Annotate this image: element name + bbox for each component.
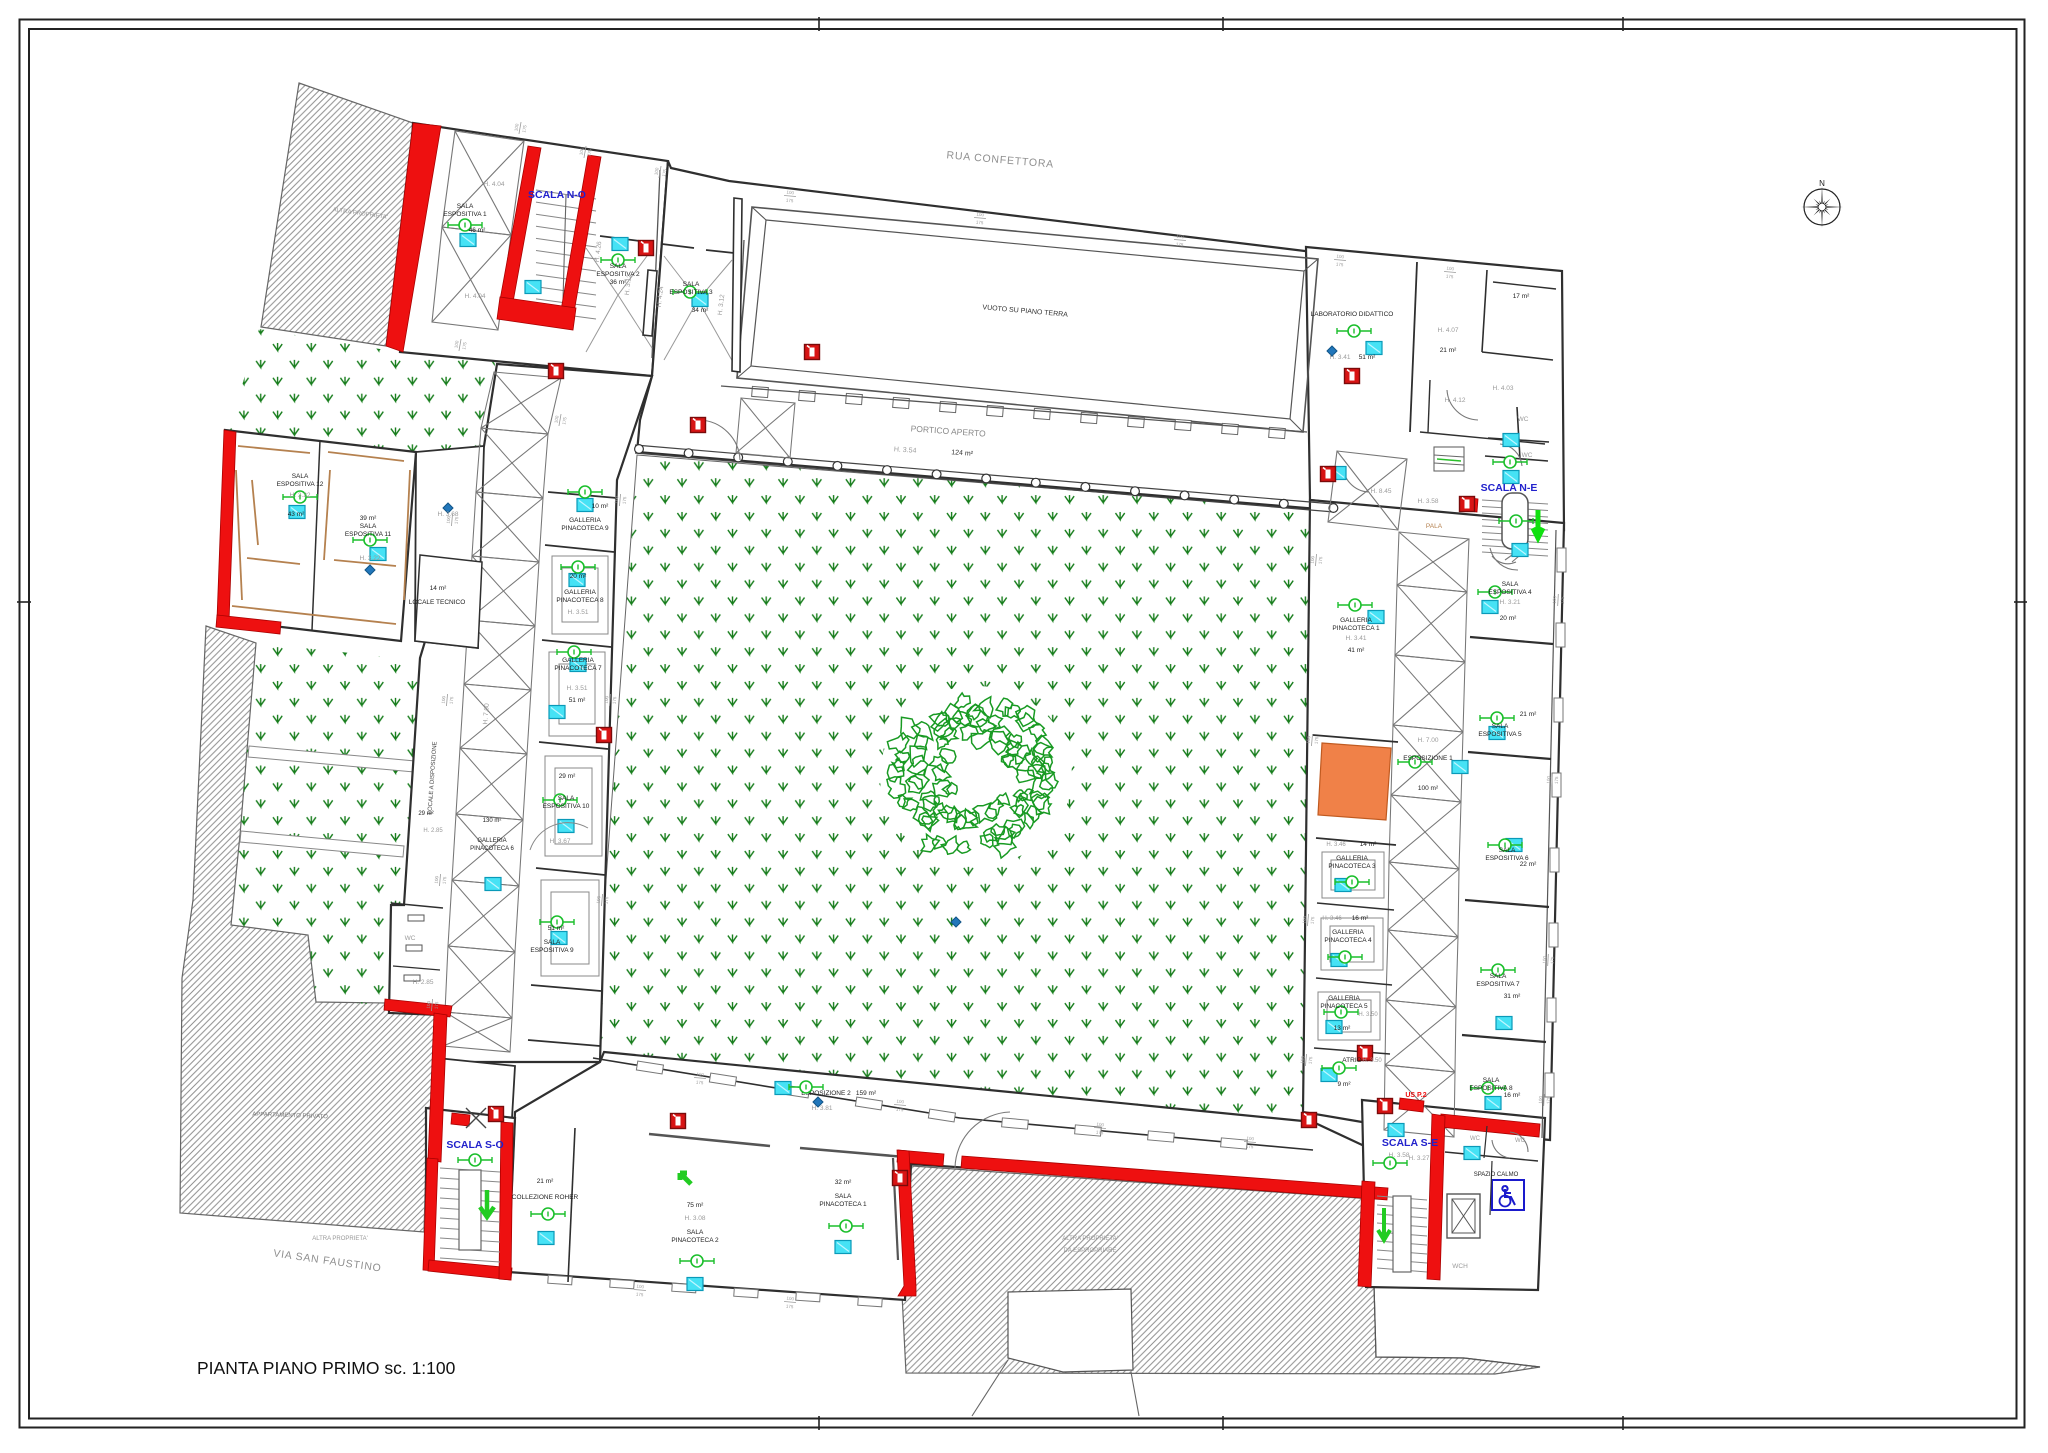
svg-text:H. 3.22: H. 3.22 bbox=[360, 555, 381, 562]
svg-text:H. 3.58: H. 3.58 bbox=[1418, 498, 1439, 505]
svg-text:ESPOSITIVA 3: ESPOSITIVA 3 bbox=[669, 289, 713, 296]
svg-text:175: 175 bbox=[1308, 1056, 1314, 1064]
svg-text:100: 100 bbox=[1246, 1136, 1254, 1142]
svg-text:29 m²: 29 m² bbox=[418, 811, 433, 817]
svg-text:SALA: SALA bbox=[457, 203, 474, 210]
svg-text:46 m²: 46 m² bbox=[469, 227, 486, 234]
svg-text:175: 175 bbox=[976, 220, 984, 226]
svg-text:H. 8.45: H. 8.45 bbox=[1371, 488, 1392, 495]
svg-text:175: 175 bbox=[1446, 274, 1454, 280]
svg-text:100: 100 bbox=[1176, 234, 1184, 240]
svg-text:175: 175 bbox=[434, 1001, 440, 1009]
svg-text:100: 100 bbox=[596, 895, 602, 903]
svg-text:ESPOSITIVA 7: ESPOSITIVA 7 bbox=[1476, 981, 1520, 988]
svg-text:H. 3.50: H. 3.50 bbox=[1358, 1012, 1378, 1018]
svg-text:100 m²: 100 m² bbox=[1418, 785, 1439, 792]
svg-text:SALA: SALA bbox=[1502, 581, 1519, 588]
svg-text:34 m²: 34 m² bbox=[692, 307, 709, 314]
svg-text:GALLERIA: GALLERIA bbox=[1336, 855, 1368, 862]
svg-text:100: 100 bbox=[636, 1284, 644, 1290]
svg-text:ALTRA PROPRIETA': ALTRA PROPRIETA' bbox=[1062, 1236, 1118, 1242]
svg-text:75 m²: 75 m² bbox=[687, 1202, 704, 1209]
svg-text:SALA: SALA bbox=[687, 1229, 704, 1236]
svg-text:PINACOTECA 4: PINACOTECA 4 bbox=[1324, 937, 1372, 944]
svg-text:175: 175 bbox=[1310, 916, 1316, 924]
svg-text:PINACOTECA 2: PINACOTECA 2 bbox=[671, 1237, 719, 1244]
svg-text:175: 175 bbox=[1546, 1096, 1551, 1104]
svg-text:100: 100 bbox=[1310, 555, 1316, 563]
svg-text:H. 2.85: H. 2.85 bbox=[413, 979, 434, 986]
svg-text:31 m²: 31 m² bbox=[1504, 993, 1521, 1000]
svg-text:LABORATORIO DIDATTICO: LABORATORIO DIDATTICO bbox=[1311, 311, 1394, 318]
svg-text:WC: WC bbox=[405, 935, 416, 942]
svg-text:51 m²: 51 m² bbox=[569, 697, 586, 704]
svg-text:H. 3.22: H. 3.22 bbox=[290, 492, 311, 499]
svg-text:H. 4.12: H. 4.12 bbox=[1445, 397, 1466, 404]
svg-text:H. 3.58: H. 3.58 bbox=[1389, 1152, 1410, 1159]
svg-text:GALLERIA: GALLERIA bbox=[1332, 929, 1364, 936]
svg-text:ESPOSITIVA 1: ESPOSITIVA 1 bbox=[443, 211, 487, 218]
svg-text:WC: WC bbox=[1470, 1136, 1481, 1142]
svg-text:H. 3.46: H. 3.46 bbox=[1322, 916, 1342, 922]
svg-text:51 m²: 51 m² bbox=[548, 925, 565, 932]
svg-text:175: 175 bbox=[612, 696, 618, 704]
svg-text:16 m²: 16 m² bbox=[1504, 1092, 1521, 1099]
svg-text:10 m²: 10 m² bbox=[592, 503, 609, 510]
svg-text:PINACOTECA 1: PINACOTECA 1 bbox=[1332, 625, 1380, 632]
svg-text:159 m²: 159 m² bbox=[856, 1090, 877, 1097]
svg-text:SALA: SALA bbox=[1492, 723, 1509, 730]
svg-text:100: 100 bbox=[696, 1072, 704, 1078]
svg-text:PINACOTECA 1: PINACOTECA 1 bbox=[819, 1201, 867, 1208]
svg-text:175: 175 bbox=[696, 1080, 704, 1086]
svg-text:100: 100 bbox=[434, 875, 440, 883]
svg-text:16 m²: 16 m² bbox=[1352, 915, 1369, 922]
svg-text:175: 175 bbox=[442, 876, 448, 884]
svg-text:100: 100 bbox=[1542, 955, 1547, 963]
svg-text:PIANTA PIANO PRIMO sc. 1:100: PIANTA PIANO PRIMO sc. 1:100 bbox=[197, 1358, 456, 1378]
svg-text:ESPOSITIVA 8: ESPOSITIVA 8 bbox=[1469, 1085, 1513, 1092]
svg-text:175: 175 bbox=[786, 1304, 794, 1310]
svg-text:SALA: SALA bbox=[360, 523, 377, 530]
svg-text:100: 100 bbox=[1302, 915, 1308, 923]
svg-text:ATRIO: ATRIO bbox=[1342, 1057, 1361, 1064]
svg-text:SALA: SALA bbox=[835, 1193, 852, 1200]
svg-text:130 m²: 130 m² bbox=[483, 818, 502, 824]
svg-text:WC: WC bbox=[1518, 416, 1529, 423]
svg-text:SALA: SALA bbox=[610, 263, 627, 270]
svg-text:100: 100 bbox=[1306, 735, 1312, 743]
svg-text:SPAZIO CALMO: SPAZIO CALMO bbox=[1474, 1172, 1519, 1178]
svg-text:17 m²: 17 m² bbox=[1513, 293, 1530, 300]
svg-text:SALA: SALA bbox=[683, 281, 700, 288]
svg-text:H. 3.51: H. 3.51 bbox=[568, 609, 589, 616]
svg-text:175: 175 bbox=[1176, 242, 1184, 248]
svg-text:ESPOSIZIONE 1: ESPOSIZIONE 1 bbox=[1403, 755, 1453, 762]
svg-text:175: 175 bbox=[786, 198, 794, 204]
svg-text:H. 3.51: H. 3.51 bbox=[567, 685, 588, 692]
svg-text:H. 3.50: H. 3.50 bbox=[1362, 1058, 1382, 1064]
svg-text:ALTRA PROPRIETA': ALTRA PROPRIETA' bbox=[312, 1236, 368, 1242]
svg-text:SCALA N-O: SCALA N-O bbox=[528, 189, 586, 201]
svg-text:H. 3.41: H. 3.41 bbox=[1330, 354, 1351, 361]
svg-text:GALLERIA: GALLERIA bbox=[562, 657, 594, 664]
svg-text:SALA: SALA bbox=[544, 939, 561, 946]
svg-text:175: 175 bbox=[1314, 736, 1320, 744]
svg-text:H. 4.07: H. 4.07 bbox=[1438, 327, 1459, 334]
svg-text:175: 175 bbox=[1550, 956, 1555, 964]
svg-text:H. 3.41: H. 3.41 bbox=[1346, 635, 1367, 642]
svg-text:H. 4.04: H. 4.04 bbox=[484, 181, 505, 188]
svg-text:GALLERIA: GALLERIA bbox=[1328, 995, 1360, 1002]
svg-text:SALA: SALA bbox=[558, 795, 575, 802]
svg-text:COLLEZIONE ROHER: COLLEZIONE ROHER bbox=[512, 1194, 579, 1201]
svg-text:SALA: SALA bbox=[1499, 847, 1516, 854]
svg-text:100: 100 bbox=[786, 1296, 794, 1302]
svg-text:H. 3.21: H. 3.21 bbox=[1500, 599, 1521, 606]
svg-text:PINACOTECA 9: PINACOTECA 9 bbox=[561, 525, 609, 532]
svg-text:100: 100 bbox=[1300, 1055, 1306, 1063]
svg-text:DA ESPROPRIARE: DA ESPROPRIARE bbox=[1063, 1248, 1116, 1254]
svg-text:LOCALE TECNICO: LOCALE TECNICO bbox=[409, 599, 466, 606]
svg-text:ESPOSITIVA 11: ESPOSITIVA 11 bbox=[345, 531, 392, 538]
svg-text:39 m²: 39 m² bbox=[360, 515, 377, 522]
svg-text:175: 175 bbox=[449, 696, 455, 704]
svg-text:14 m²: 14 m² bbox=[430, 585, 447, 592]
svg-text:9 m²: 9 m² bbox=[1338, 1081, 1352, 1088]
svg-text:H. 3.08: H. 3.08 bbox=[685, 1215, 706, 1222]
svg-text:100: 100 bbox=[1336, 254, 1344, 260]
svg-text:ESPOSITIVA 12: ESPOSITIVA 12 bbox=[277, 481, 324, 488]
svg-text:100: 100 bbox=[896, 1099, 904, 1105]
svg-text:100: 100 bbox=[786, 190, 794, 196]
svg-text:100: 100 bbox=[1538, 1095, 1543, 1103]
svg-text:13 m²: 13 m² bbox=[1334, 1025, 1351, 1032]
svg-text:100: 100 bbox=[604, 695, 610, 703]
svg-text:SCALA N-E: SCALA N-E bbox=[1481, 482, 1538, 494]
svg-text:H. 3.46: H. 3.46 bbox=[1326, 842, 1346, 848]
svg-text:SALA: SALA bbox=[1490, 973, 1507, 980]
svg-text:ESPOSITIVA 4: ESPOSITIVA 4 bbox=[1488, 589, 1532, 596]
svg-text:21 m²: 21 m² bbox=[537, 1178, 554, 1185]
svg-text:51 m²: 51 m² bbox=[1359, 354, 1376, 361]
svg-text:H. 3.81: H. 3.81 bbox=[812, 1105, 833, 1112]
svg-text:175: 175 bbox=[1246, 1144, 1254, 1150]
svg-text:100: 100 bbox=[614, 495, 620, 503]
svg-text:H. 3.27: H. 3.27 bbox=[1409, 1155, 1430, 1162]
svg-text:SALA: SALA bbox=[1483, 1077, 1500, 1084]
svg-text:PINACOTECA 8: PINACOTECA 8 bbox=[556, 597, 604, 604]
svg-text:21 m²: 21 m² bbox=[1440, 347, 1457, 354]
svg-text:100: 100 bbox=[1552, 595, 1557, 603]
svg-text:GALLERIA: GALLERIA bbox=[1340, 617, 1372, 624]
svg-text:100: 100 bbox=[976, 212, 984, 218]
svg-text:43 m²: 43 m² bbox=[288, 511, 305, 518]
svg-text:175: 175 bbox=[1318, 556, 1324, 564]
svg-text:ESPOSITIVA 9: ESPOSITIVA 9 bbox=[530, 947, 574, 954]
svg-text:175: 175 bbox=[454, 516, 460, 524]
svg-text:H. 4.04: H. 4.04 bbox=[465, 293, 486, 300]
svg-text:175: 175 bbox=[1560, 596, 1565, 604]
svg-text:20 m²: 20 m² bbox=[1500, 615, 1517, 622]
svg-text:100: 100 bbox=[426, 1000, 432, 1008]
svg-text:175: 175 bbox=[896, 1107, 904, 1113]
svg-text:H. 2.85: H. 2.85 bbox=[423, 828, 443, 834]
svg-text:ESPOSITIVA 10: ESPOSITIVA 10 bbox=[543, 803, 590, 810]
svg-text:14 m²: 14 m² bbox=[1360, 841, 1377, 848]
svg-text:21 m²: 21 m² bbox=[1520, 711, 1537, 718]
svg-text:WC: WC bbox=[1522, 452, 1533, 459]
svg-text:WC: WC bbox=[1515, 1138, 1526, 1144]
svg-text:175: 175 bbox=[604, 896, 610, 904]
svg-text:GALLERIA: GALLERIA bbox=[564, 589, 596, 596]
svg-text:WCH: WCH bbox=[1452, 1263, 1468, 1270]
svg-text:100: 100 bbox=[1546, 775, 1551, 783]
svg-text:175: 175 bbox=[622, 496, 628, 504]
svg-text:SCALA S-E: SCALA S-E bbox=[1382, 1137, 1438, 1149]
svg-text:PINACOTECA 3: PINACOTECA 3 bbox=[1328, 863, 1376, 870]
svg-text:ESPOSITIVA 5: ESPOSITIVA 5 bbox=[1478, 731, 1522, 738]
svg-text:US P.2: US P.2 bbox=[1405, 1092, 1426, 1099]
svg-text:PINACOTECA 5: PINACOTECA 5 bbox=[1320, 1003, 1368, 1010]
svg-text:100: 100 bbox=[446, 515, 452, 523]
svg-text:41 m²: 41 m² bbox=[1348, 647, 1365, 654]
svg-text:175: 175 bbox=[1336, 262, 1344, 268]
svg-text:100: 100 bbox=[441, 695, 447, 703]
svg-text:H. 7.00: H. 7.00 bbox=[1418, 737, 1439, 744]
svg-text:N: N bbox=[1819, 179, 1825, 188]
svg-text:175: 175 bbox=[1554, 776, 1559, 784]
svg-text:H. 3.67: H. 3.67 bbox=[550, 838, 571, 845]
svg-text:29 m²: 29 m² bbox=[559, 773, 576, 780]
svg-text:175: 175 bbox=[636, 1292, 644, 1298]
svg-text:GALLERIA: GALLERIA bbox=[569, 517, 601, 524]
svg-text:H. 4.03: H. 4.03 bbox=[1493, 385, 1514, 392]
svg-text:PALA: PALA bbox=[1426, 523, 1443, 530]
svg-text:175: 175 bbox=[1096, 1130, 1104, 1136]
svg-text:ESPOSITIVA 2: ESPOSITIVA 2 bbox=[596, 271, 640, 278]
svg-text:100: 100 bbox=[1446, 266, 1454, 272]
svg-text:SALA: SALA bbox=[292, 473, 309, 480]
svg-text:PINACOTECA 7: PINACOTECA 7 bbox=[554, 665, 602, 672]
svg-text:PINACOTECA 6: PINACOTECA 6 bbox=[470, 846, 514, 852]
svg-text:SCALA S-O: SCALA S-O bbox=[446, 1139, 503, 1151]
svg-text:100: 100 bbox=[1096, 1122, 1104, 1128]
svg-text:GALLERIA: GALLERIA bbox=[477, 838, 506, 844]
svg-text:22 m²: 22 m² bbox=[1520, 861, 1537, 868]
svg-text:20 m²: 20 m² bbox=[570, 573, 587, 580]
svg-text:32 m²: 32 m² bbox=[835, 1179, 852, 1186]
